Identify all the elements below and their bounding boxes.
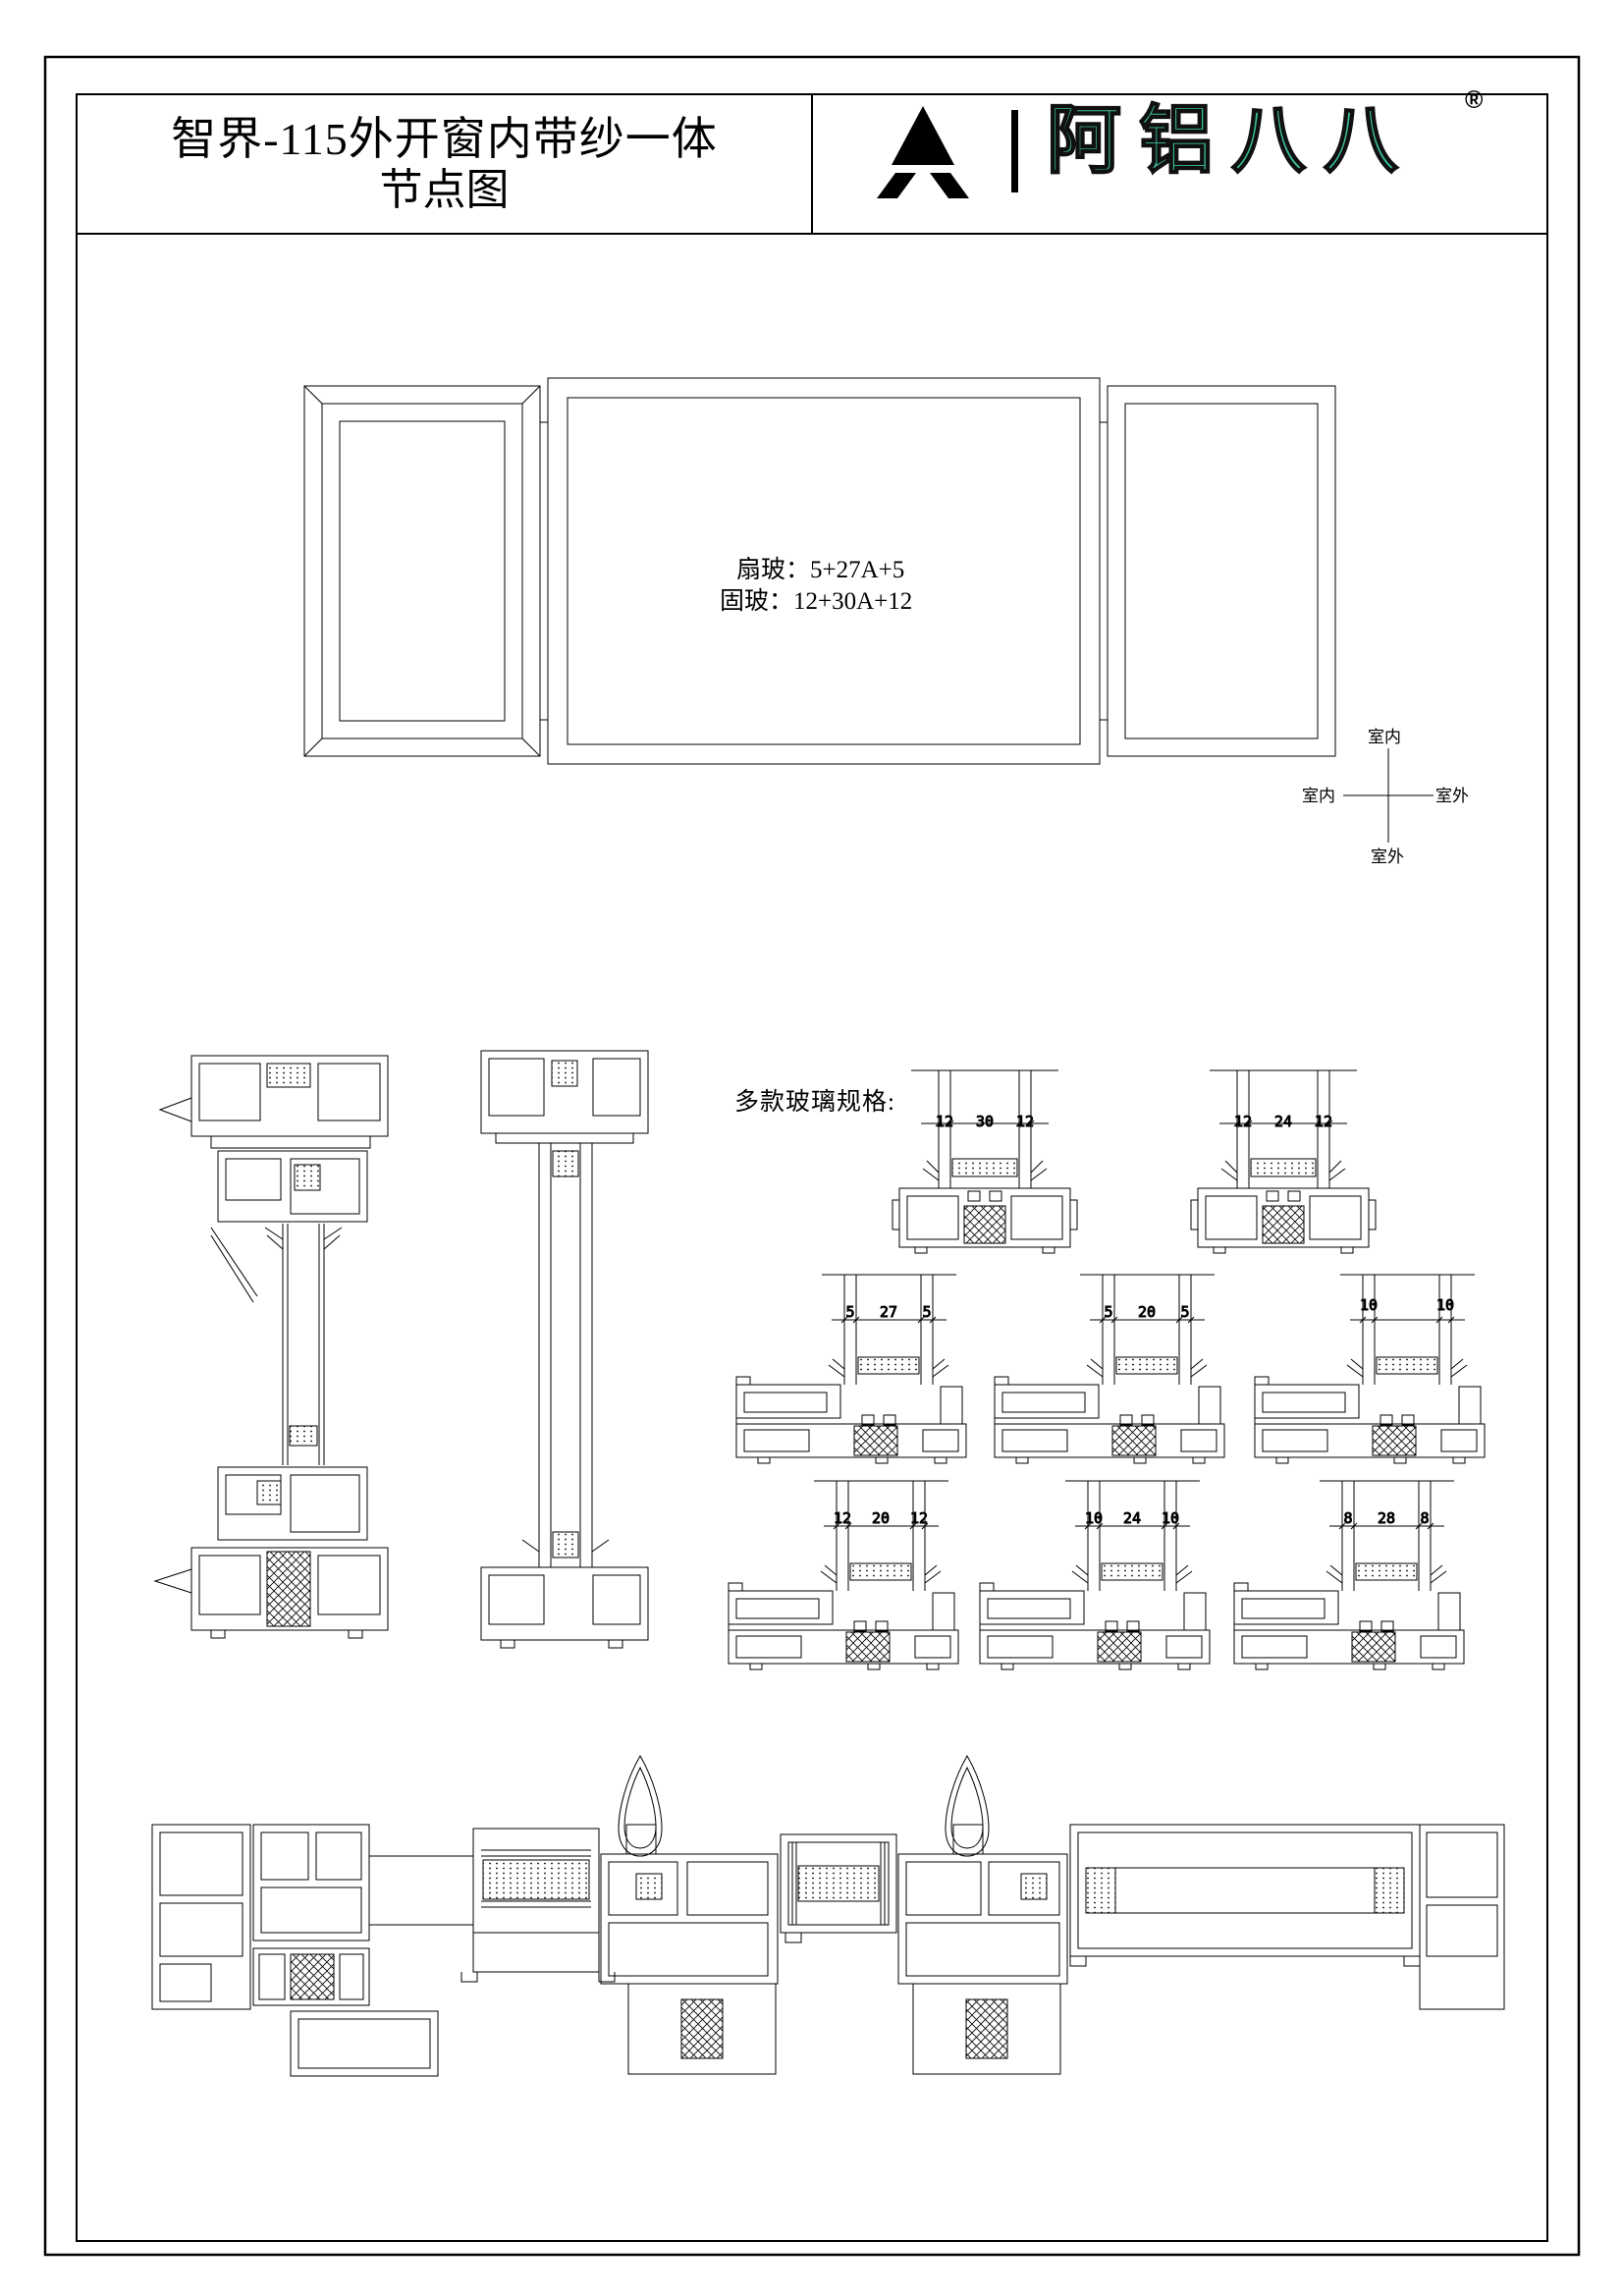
section-vertical-sash [155, 1056, 388, 1638]
glass-detail-grid: 12 30 12 12 24 12 5 27 5 5 20 5 10 10 12… [729, 1070, 1485, 1669]
dim-label: 5 [845, 1303, 854, 1321]
brand-logotype: 阿铝八八 [1047, 102, 1416, 181]
dim-label: 12 [1315, 1113, 1332, 1130]
dim-label: 12 [1016, 1113, 1034, 1130]
dim-label: 30 [976, 1113, 994, 1130]
dim-label: 5 [922, 1303, 931, 1321]
dim-label: 27 [880, 1303, 897, 1321]
dim-label: 10 [1162, 1509, 1179, 1527]
sash-glass-spec: 扇玻：5+27A+5 [736, 550, 904, 585]
dim-label: 20 [872, 1509, 890, 1527]
dim-label: 12 [834, 1509, 851, 1527]
dim-label: 10 [1436, 1296, 1454, 1314]
section-vertical-fixed [481, 1051, 648, 1648]
compass-label-bottom: 室外 [1371, 843, 1404, 867]
orientation-cross [1343, 748, 1434, 843]
dim-label: 5 [1104, 1303, 1112, 1321]
dim-label: 8 [1343, 1509, 1352, 1527]
glass-spec-heading: 多款玻璃规格: [734, 1082, 895, 1118]
triangle-a-icon [877, 106, 1018, 198]
compass-label-right: 室外 [1435, 782, 1469, 806]
dim-label: 10 [1085, 1509, 1103, 1527]
compass-label-top: 室内 [1368, 723, 1401, 747]
registered-trademark: ® [1465, 86, 1483, 115]
page-title-line1: 智界-115外开窗内带纱一体 [171, 114, 718, 165]
fixed-glass-spec: 固玻：12+30A+12 [720, 581, 912, 617]
dim-label: 12 [910, 1509, 928, 1527]
page-title-line2: 节点图 [380, 165, 510, 216]
dim-label: 8 [1420, 1509, 1429, 1527]
dim-label: 28 [1378, 1509, 1395, 1527]
dim-label: 12 [936, 1113, 953, 1130]
dim-label: 5 [1180, 1303, 1189, 1321]
glass-detail-1 [893, 1070, 1077, 1253]
title-block: 智界-115外开窗内带纱一体 节点图 [77, 96, 812, 234]
section-horizontal-assembly [152, 1756, 1504, 2076]
glass-detail-2 [1191, 1070, 1376, 1253]
dim-label: 24 [1274, 1113, 1292, 1130]
dim-label: 20 [1138, 1303, 1156, 1321]
dim-label: 24 [1123, 1509, 1141, 1527]
compass-label-left: 室内 [1302, 782, 1335, 806]
cad-linework: 12 30 12 12 24 12 5 27 5 5 20 5 10 10 12… [0, 0, 1623, 2296]
dim-label: 10 [1360, 1296, 1378, 1314]
drawing-sheet: 12 30 12 12 24 12 5 27 5 5 20 5 10 10 12… [0, 0, 1623, 2296]
dim-label: 12 [1234, 1113, 1252, 1130]
